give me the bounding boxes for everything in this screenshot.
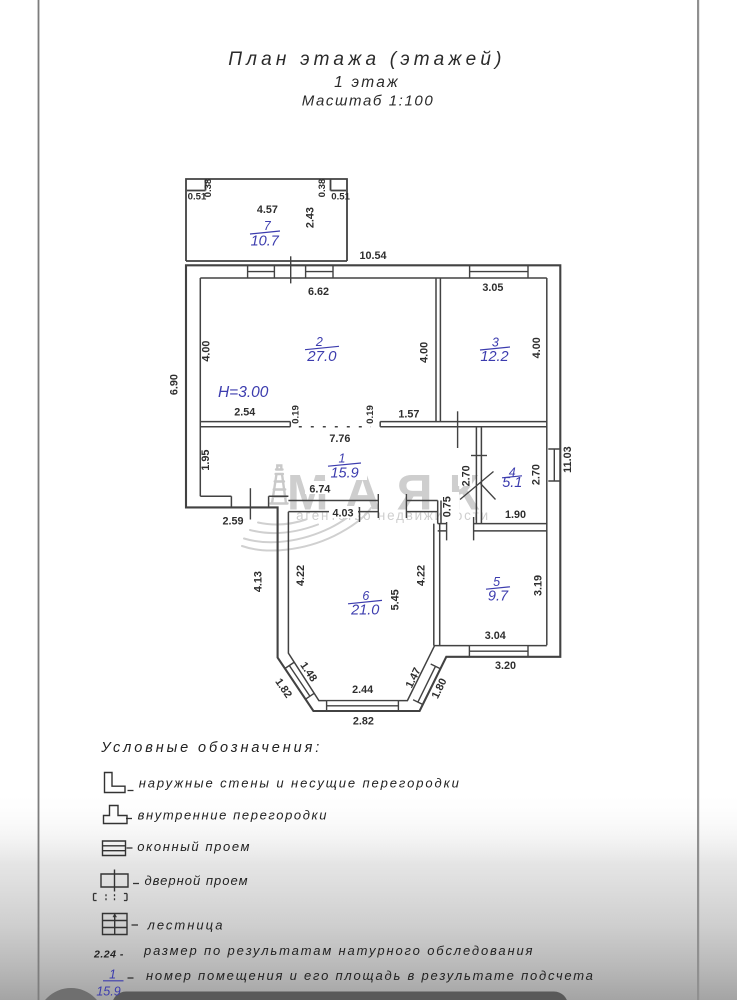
svg-text:11.03: 11.03 [562, 446, 574, 472]
svg-text:H=3.00: H=3.00 [218, 384, 269, 401]
svg-text:5: 5 [493, 575, 500, 589]
svg-text:27.0: 27.0 [306, 348, 337, 365]
svg-text:1.57: 1.57 [398, 408, 419, 420]
svg-text:1 этаж: 1 этаж [334, 74, 400, 91]
svg-text:4.13: 4.13 [252, 571, 264, 592]
svg-text:4.00: 4.00 [201, 341, 213, 362]
svg-text:5.45: 5.45 [390, 589, 402, 610]
svg-text:оконный проем: оконный проем [137, 839, 251, 854]
svg-text:1.95: 1.95 [200, 450, 212, 471]
svg-text:6.90: 6.90 [169, 374, 181, 395]
svg-text:6.74: 6.74 [309, 484, 330, 496]
svg-text:Масштаб 1:100: Масштаб 1:100 [302, 93, 435, 110]
svg-text:2.54: 2.54 [234, 407, 255, 419]
svg-text:дверной проем: дверной проем [145, 873, 249, 888]
svg-text:2.44: 2.44 [352, 684, 373, 696]
svg-text:4.00: 4.00 [531, 337, 543, 358]
svg-text:0.19: 0.19 [365, 405, 376, 424]
svg-text:лестница: лестница [147, 918, 225, 933]
svg-text:10.7: 10.7 [251, 234, 280, 250]
svg-text:0.38: 0.38 [317, 178, 328, 197]
svg-text:6: 6 [362, 589, 369, 603]
svg-text:2.82: 2.82 [353, 716, 374, 728]
svg-text:4.00: 4.00 [418, 342, 430, 363]
svg-text:2: 2 [315, 335, 323, 349]
svg-text:2.59: 2.59 [222, 515, 243, 527]
svg-text:7: 7 [264, 219, 272, 233]
svg-text:3.05: 3.05 [482, 282, 503, 294]
svg-text:внутренние перегородки: внутренние перегородки [138, 808, 329, 823]
svg-text:3.20: 3.20 [495, 660, 516, 672]
svg-text:5.1: 5.1 [502, 475, 522, 491]
svg-text:21.0: 21.0 [350, 603, 379, 619]
svg-text:2.70: 2.70 [530, 464, 542, 485]
svg-text:6.62: 6.62 [308, 286, 329, 298]
svg-text:9.7: 9.7 [488, 589, 509, 605]
svg-text:12.2: 12.2 [480, 349, 508, 365]
svg-text:0.38: 0.38 [203, 178, 214, 197]
svg-text:размер по результатам натурног: размер по результатам натурного обследов… [143, 943, 534, 958]
svg-text:4.22: 4.22 [295, 565, 307, 586]
svg-text:номер помещения и его площадь: номер помещения и его площадь в результа… [146, 968, 595, 983]
svg-text:0.75: 0.75 [441, 496, 453, 517]
svg-text:3.19: 3.19 [532, 575, 544, 596]
svg-text:Условные обозначения:: Условные обозначения: [100, 740, 322, 756]
svg-text:2.24 -: 2.24 - [93, 949, 124, 961]
svg-text:1: 1 [109, 968, 116, 982]
svg-text:15.9: 15.9 [96, 985, 120, 999]
svg-text:0.51: 0.51 [331, 192, 350, 203]
svg-text:10.54: 10.54 [359, 250, 386, 262]
svg-text:4.57: 4.57 [257, 204, 278, 216]
svg-text:7.76: 7.76 [329, 433, 350, 445]
svg-text:1: 1 [339, 452, 346, 466]
svg-text:3.04: 3.04 [485, 630, 506, 642]
svg-text:агентство недвижимости: агентство недвижимости [296, 508, 490, 523]
svg-text:4.03: 4.03 [332, 507, 353, 519]
svg-text:наружные стены и несущие перег: наружные стены и несущие перегородки [139, 776, 461, 791]
svg-text:План этажа (этажей): План этажа (этажей) [228, 49, 505, 70]
svg-text:0.19: 0.19 [291, 405, 302, 424]
svg-text:2.43: 2.43 [305, 207, 317, 228]
svg-text:4.22: 4.22 [416, 565, 428, 586]
svg-text:15.9: 15.9 [330, 465, 358, 481]
svg-text:3: 3 [492, 336, 499, 350]
svg-text:2.70: 2.70 [461, 465, 473, 486]
svg-text:1.90: 1.90 [505, 509, 526, 521]
